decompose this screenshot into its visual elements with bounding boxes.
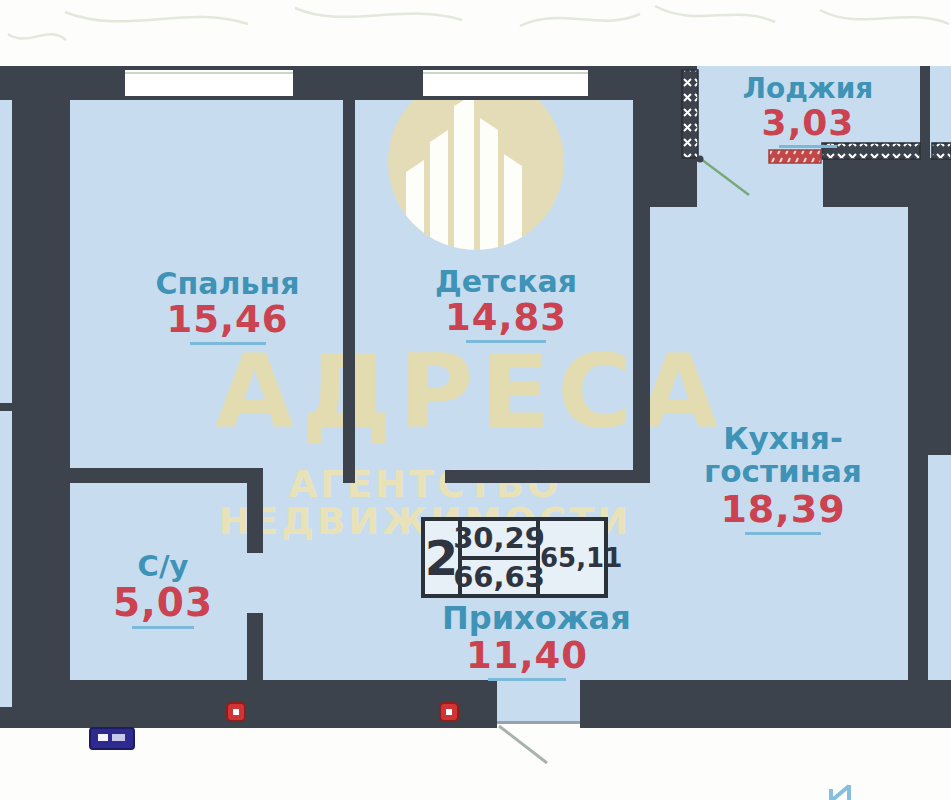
room-label-kitchen-living: Кухня-гостиная 18,39 xyxy=(653,422,913,535)
area-underline xyxy=(745,532,821,535)
window-bedroom xyxy=(125,66,293,100)
utility-marker-icon xyxy=(440,703,458,721)
room-area: 5,03 xyxy=(93,582,233,624)
info-value-right: 65,11 xyxy=(540,521,622,594)
room-label-bathroom: С/у 5,03 xyxy=(93,551,233,629)
room-label-hallway: Прихожая 11,40 xyxy=(442,601,612,681)
balcony-door-swing xyxy=(697,156,750,196)
room-name: С/у xyxy=(93,551,233,582)
room-area: 18,39 xyxy=(653,489,913,530)
room-name: Детская xyxy=(418,266,594,298)
area-underline xyxy=(488,678,566,681)
room-name: Спальня xyxy=(140,268,315,300)
area-underline xyxy=(190,342,266,345)
elevation-marker-icon xyxy=(90,728,134,749)
room-area: 14,83 xyxy=(418,298,594,338)
background-sketch-lines xyxy=(8,6,949,40)
info-areas-column: 30,29 66,63 xyxy=(462,521,540,594)
floor-plan-stage: АДРЕСА АГЕНТСТВО НЕДВИЖИМОСТИ xyxy=(0,0,951,800)
room-label-children: Детская 14,83 xyxy=(418,266,594,343)
room-area: 11,40 xyxy=(442,636,612,676)
room-area: 3,03 xyxy=(733,104,883,143)
loggia-window-sill xyxy=(769,150,821,163)
window-children xyxy=(423,66,588,100)
cropped-neighbor-label xyxy=(831,785,849,800)
room-label-loggia: Лоджия 3,03 xyxy=(733,74,883,148)
area-underline xyxy=(779,145,837,148)
entry-door xyxy=(497,680,580,763)
room-name: Прихожая xyxy=(442,601,612,636)
room-label-bedroom: Спальня 15,46 xyxy=(140,268,315,345)
area-underline xyxy=(132,626,194,629)
room-name: Лоджия xyxy=(733,74,883,104)
area-underline xyxy=(466,340,546,343)
room-name: Кухня-гостиная xyxy=(653,422,913,489)
info-value-top: 30,29 xyxy=(462,521,536,560)
loggia-side-window xyxy=(682,70,698,158)
neighbor-window xyxy=(932,143,951,159)
info-table: 2 30,29 66,63 65,11 xyxy=(421,517,608,598)
room-area: 15,46 xyxy=(140,300,315,340)
info-value-bottom: 66,63 xyxy=(462,560,536,595)
utility-marker-icon xyxy=(227,703,245,721)
